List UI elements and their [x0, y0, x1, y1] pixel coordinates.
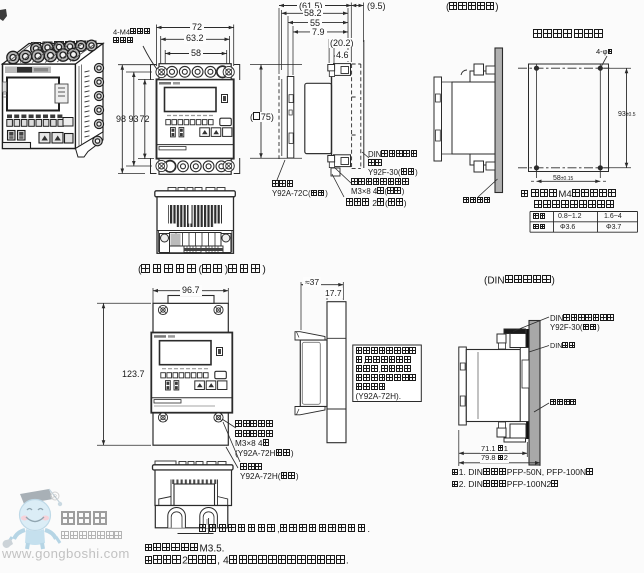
svg-text:R: R: [53, 495, 57, 501]
